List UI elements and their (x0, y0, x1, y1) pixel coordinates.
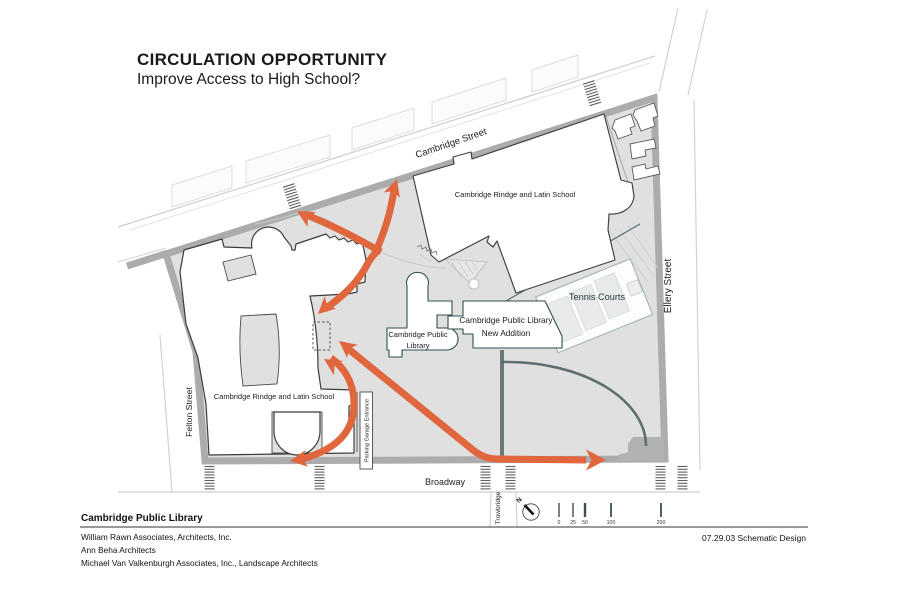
svg-text:Improve Access to High School?: Improve Access to High School? (137, 71, 361, 88)
svg-text:200: 200 (657, 520, 666, 526)
svg-text:Library: Library (407, 341, 430, 350)
svg-text:New Addition: New Addition (482, 328, 531, 338)
svg-text:50: 50 (582, 520, 588, 526)
svg-text:25: 25 (570, 520, 576, 526)
svg-text:0: 0 (558, 520, 561, 526)
svg-text:07.29.03 Schematic Design: 07.29.03 Schematic Design (702, 533, 806, 543)
svg-text:Ann Beha Architects: Ann Beha Architects (81, 545, 156, 555)
svg-text:Cambridge Public: Cambridge Public (388, 330, 447, 339)
svg-text:Michael Van Valkenburgh Associ: Michael Van Valkenburgh Associates, Inc.… (81, 558, 318, 568)
svg-text:Broadway: Broadway (425, 477, 466, 487)
svg-text:CIRCULATION OPPORTUNITY: CIRCULATION OPPORTUNITY (137, 50, 388, 69)
svg-text:Cambridge Rindge and Latin Sch: Cambridge Rindge and Latin School (455, 190, 576, 199)
svg-text:Trowbridge: Trowbridge (495, 491, 502, 524)
svg-text:William Rawn Associates, Archi: William Rawn Associates, Architects, Inc… (81, 532, 232, 542)
svg-text:100: 100 (607, 520, 616, 526)
svg-text:Parking Garage Entrance: Parking Garage Entrance (365, 399, 371, 462)
svg-text:Cambridge Public Library: Cambridge Public Library (81, 513, 203, 524)
svg-text:Ellery Street: Ellery Street (663, 259, 674, 314)
svg-text:Felton Street: Felton Street (184, 387, 194, 437)
svg-text:Cambridge Public Library: Cambridge Public Library (459, 315, 553, 325)
svg-text:Tennis Courts: Tennis Courts (569, 292, 626, 302)
svg-text:Cambridge Rindge and Latin Sch: Cambridge Rindge and Latin School (214, 392, 335, 401)
